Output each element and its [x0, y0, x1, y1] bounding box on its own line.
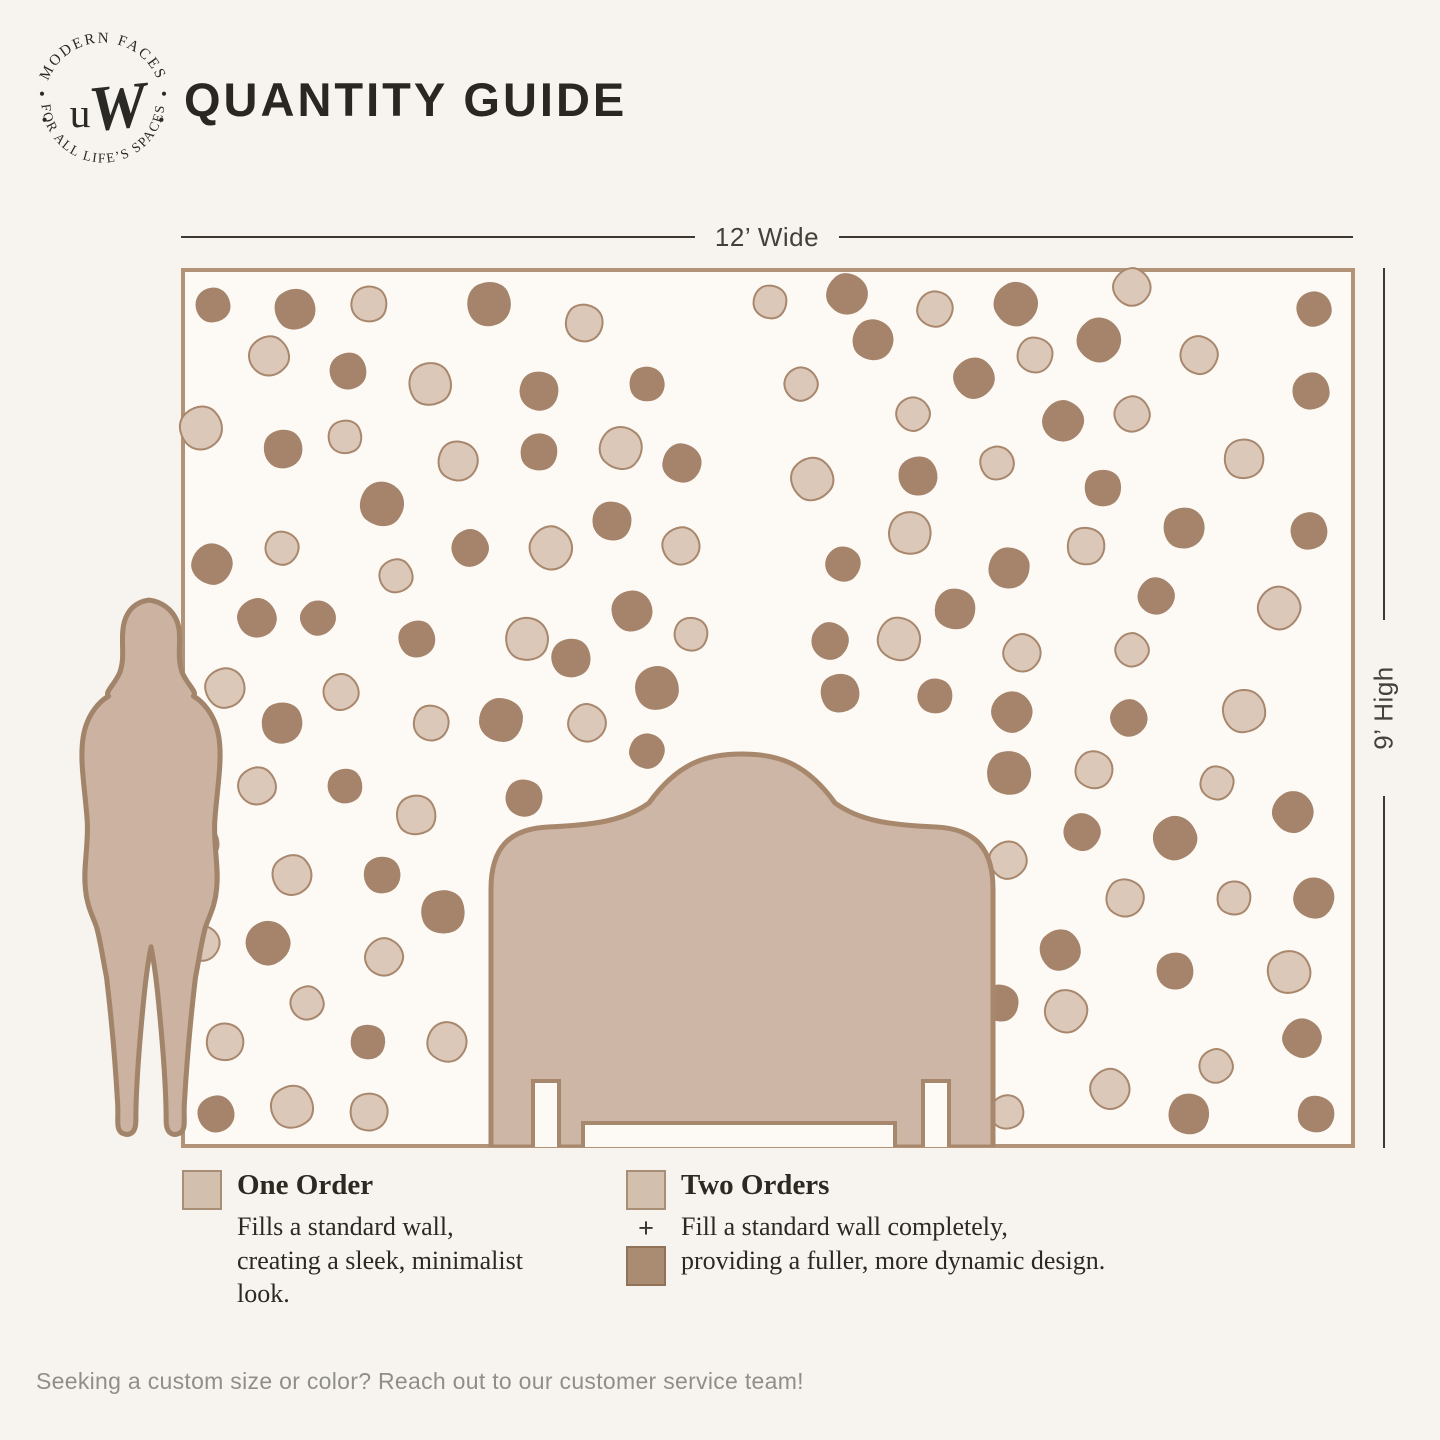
wall-dot: [889, 390, 937, 438]
wall-dot: [667, 610, 715, 658]
wall-dot: [294, 594, 343, 643]
wall-dot: [521, 519, 581, 579]
wall-dot: [778, 361, 823, 406]
wall-dot: [324, 765, 365, 806]
wall-dot: [1098, 871, 1152, 925]
width-dimension: 12’ Wide: [181, 222, 1353, 252]
wall-dot: [358, 931, 410, 983]
brand-logo-badge-icon: MODERN FACES FOR ALL LIFE’S SPACES u W: [30, 28, 176, 174]
wall-dot: [479, 698, 524, 743]
wall-dot: [315, 666, 367, 718]
wall-dot: [1285, 869, 1343, 927]
wall-dot: [388, 788, 443, 843]
one-order-title: One Order: [237, 1170, 537, 1202]
one-order-description: Fills a standard wall, creating a sleek,…: [237, 1210, 537, 1311]
wall-dot: [881, 504, 939, 562]
wall-dot: [1218, 434, 1270, 486]
wall-dot: [1220, 686, 1268, 734]
wall-dot: [873, 614, 923, 664]
wall-dot: [988, 546, 1031, 589]
wall-dot: [1016, 336, 1054, 374]
two-orders-swatch-light: [626, 1170, 666, 1210]
wall-dot: [1106, 261, 1158, 313]
wall-dot: [1259, 942, 1319, 1002]
wall-dot: [187, 540, 236, 589]
wall-dot: [1036, 394, 1090, 448]
legend-two-orders: + Two Orders Fill a standard wall comple…: [625, 1170, 1111, 1286]
wall-dot: [256, 697, 307, 748]
wall-dot: [985, 686, 1038, 739]
wall-dot: [1215, 879, 1253, 917]
wall-dot: [1081, 1061, 1138, 1118]
wall-dot: [813, 666, 867, 720]
wall-dot: [514, 366, 565, 417]
headboard-silhouette: [486, 749, 998, 1147]
page-title: QUANTITY GUIDE: [184, 72, 627, 127]
wall-dot: [328, 351, 369, 392]
plus-sign: +: [638, 1215, 654, 1241]
wall-dot: [233, 594, 282, 643]
wall-dot: [1161, 1087, 1216, 1142]
wall-dot: [170, 397, 232, 459]
wall-dot: [781, 448, 843, 510]
wall-dot: [946, 350, 1003, 407]
wall-dot: [912, 673, 957, 718]
wall-dot: [591, 501, 632, 542]
wall-dot: [430, 433, 485, 488]
wall-dot: [414, 884, 471, 941]
footer-note: Seeking a custom size or color? Reach ou…: [36, 1368, 804, 1395]
wall-dot: [590, 417, 652, 479]
wall-dot: [405, 697, 457, 749]
width-dimension-line-left: [181, 236, 695, 238]
wall-dot: [359, 852, 405, 898]
legend-one-order: One Order Fills a standard wall, creatin…: [181, 1170, 537, 1311]
wall-dot: [660, 441, 703, 484]
wall-dot: [1067, 742, 1122, 797]
height-dimension-line-top: [1383, 268, 1385, 620]
wall-dot: [230, 758, 285, 813]
one-order-swatch: [182, 1170, 222, 1210]
wall-dot: [659, 524, 703, 568]
wall-dot: [1284, 506, 1334, 556]
wall-dot: [419, 1013, 477, 1071]
wall-dot: [1292, 372, 1331, 411]
wall-dot: [818, 265, 876, 323]
wall-dot: [195, 288, 230, 323]
wall-dot: [972, 439, 1021, 488]
wall-dot: [1295, 1093, 1337, 1135]
wall-dot: [391, 613, 443, 665]
wall-dot: [557, 297, 611, 351]
wall-dot: [804, 615, 856, 667]
wall-dot: [1063, 522, 1110, 569]
wall-dot: [625, 363, 668, 406]
wall-dot: [287, 982, 328, 1023]
wall-dot: [996, 627, 1049, 680]
two-orders-swatch-dark: [626, 1246, 666, 1286]
wall-dot: [1058, 808, 1106, 856]
wall-dot: [560, 695, 615, 750]
wall-dot: [445, 524, 494, 573]
wall-dot: [1131, 570, 1182, 621]
wall-dot: [500, 612, 553, 665]
two-orders-title: Two Orders: [681, 1170, 1111, 1202]
wall-dot: [371, 552, 420, 601]
wall-dot: [1155, 951, 1196, 992]
wall-dot: [545, 633, 596, 684]
wall-dot: [751, 283, 789, 321]
wall-dot: [264, 846, 321, 903]
wall-dot: [1031, 921, 1089, 979]
wall-dot: [346, 1089, 392, 1135]
wall-dot: [1109, 627, 1156, 674]
bed-leg-left: [533, 1081, 559, 1147]
wall-dot: [1036, 981, 1097, 1042]
wall-dot: [1104, 693, 1155, 744]
wall-dot: [987, 275, 1046, 334]
wall-dot: [1068, 309, 1129, 370]
wall-dot: [461, 276, 518, 333]
wall-dot: [347, 1021, 390, 1064]
width-dimension-label: 12’ Wide: [715, 222, 819, 253]
wall-dot: [257, 524, 306, 573]
wall-dot: [518, 430, 560, 472]
bed-frame-bar: [583, 1123, 895, 1147]
wall-dot: [898, 456, 938, 496]
wall-dot: [1293, 288, 1334, 329]
wall-dot: [1251, 580, 1307, 636]
wall-dot: [346, 281, 392, 327]
width-dimension-line-right: [839, 236, 1353, 238]
wall-dot: [1198, 764, 1236, 802]
wall-dot: [1193, 1044, 1238, 1089]
bed-leg-right: [923, 1081, 949, 1147]
person-silhouette: [68, 592, 234, 1148]
wall-dot: [260, 426, 306, 472]
two-orders-description: Fill a standard wall completely, providi…: [681, 1210, 1111, 1278]
height-dimension-label: 9’ High: [1369, 666, 1400, 749]
logo-monogram-w: W: [85, 67, 154, 145]
wall-dot: [1148, 811, 1202, 865]
wall-dot: [932, 586, 978, 632]
wall-dot: [1161, 505, 1207, 551]
wall-dot: [321, 414, 368, 461]
wall-dot: [1278, 1013, 1327, 1062]
wall-dot: [634, 664, 681, 711]
wall-dot: [913, 287, 956, 330]
wall-dot: [1264, 784, 1320, 840]
wall-dot: [266, 280, 323, 337]
wall-dot: [818, 539, 867, 588]
wall-dot: [1109, 392, 1154, 437]
wall-dot: [610, 590, 652, 632]
wall-dot: [261, 1076, 323, 1138]
wall-dot: [238, 913, 297, 972]
wall-dot: [352, 473, 413, 534]
wall-dot: [1175, 330, 1224, 379]
height-dimension-line-bottom: [1383, 796, 1385, 1148]
wall-dot: [400, 354, 460, 414]
wall-dot: [1079, 465, 1126, 512]
height-dimension: 9’ High: [1362, 268, 1406, 1148]
wall-dot: [240, 327, 298, 385]
wall-dot: [844, 311, 902, 369]
